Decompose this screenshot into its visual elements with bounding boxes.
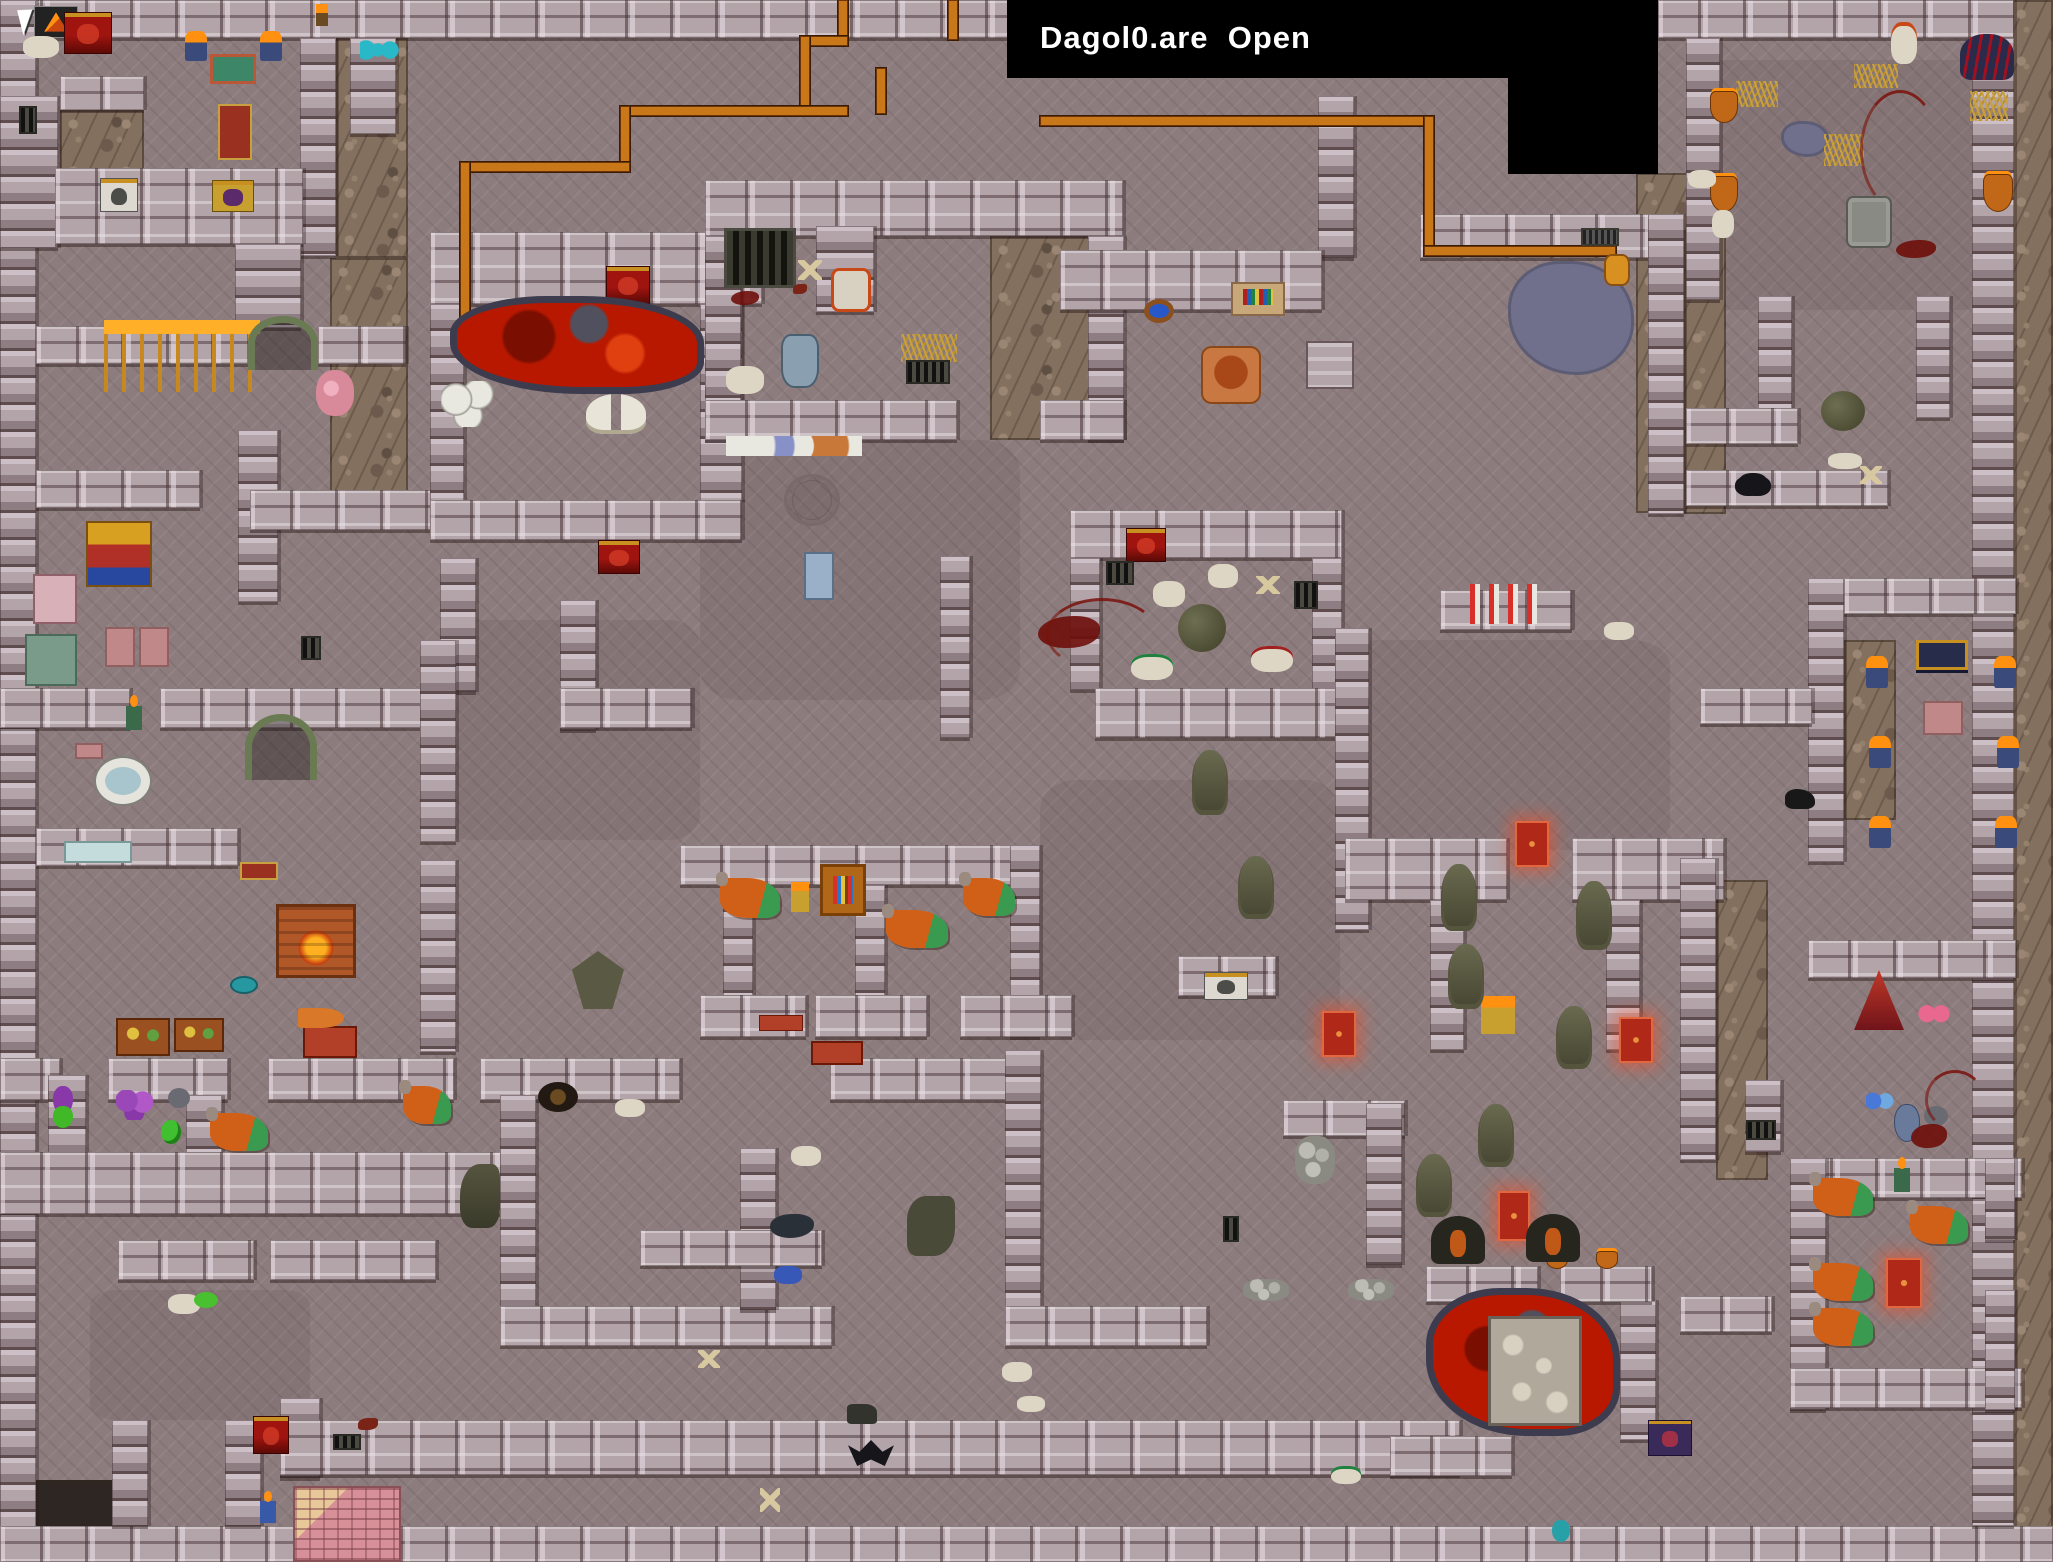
stone-wall [1560,1266,1652,1302]
skeleton-object [1017,1396,1045,1412]
skulls-plat-object [1488,1316,1582,1426]
skeleton-object [23,36,59,58]
stone-wall [0,688,130,728]
stone-wall [270,1240,436,1280]
bones-object [1256,576,1280,594]
grate-object [1294,581,1318,609]
skeleton-object [791,1146,821,1166]
heat-pipe [800,36,810,114]
skeleton-rack-object [831,268,871,312]
poles-candles-object [1470,584,1544,624]
straw-object [1736,81,1778,107]
stone-wall [0,0,1010,38]
shade-object [1040,780,1340,1040]
awning-object [403,1086,451,1124]
statue-object [1558,1006,1590,1064]
stone-wall [1005,1050,1041,1312]
bottles-blue-object [360,40,400,60]
straw-object [1824,134,1864,166]
heat-pipe [1040,116,1434,126]
stone-wall [36,470,200,508]
stone-wall [250,490,446,530]
table-brown-object [174,1018,224,1052]
teal-pot-object [1552,1520,1570,1542]
brazier-object [185,31,207,61]
stone-wall [940,556,970,738]
arch-green-object [245,714,317,780]
stone-wall [1005,1306,1207,1346]
skeleton-object [1002,1362,1032,1382]
table-set-object [1201,346,1261,404]
skull-pile-object [1295,1136,1335,1184]
statue-object [1194,750,1226,810]
brazier-hang-object [1596,1251,1618,1269]
blood-arc-object [1046,598,1158,670]
blood-arc-object [1860,90,1940,210]
stone-wall [1366,1103,1402,1265]
grate-object [1106,561,1134,585]
banner-purple-object [212,180,254,212]
stone-wall [1844,578,2016,614]
stone-wall [815,995,927,1037]
skeleton-object [1712,210,1734,238]
stone-wall [420,860,456,1052]
statue-object [1240,856,1272,914]
banner-red-object [1126,528,1166,562]
awning-object [886,910,948,948]
pots-white-object [441,381,501,427]
rock-outcrop [60,110,144,170]
stone-wall [60,76,144,110]
stone-wall [318,326,406,364]
table-red-object [303,1026,357,1058]
fish-banner-object [298,1008,344,1028]
awning-object [1813,1263,1873,1301]
skull-pile-object [1243,1279,1289,1301]
grate-object [301,636,321,660]
skeleton-object [1153,581,1185,607]
dragon-st-object [907,1196,955,1256]
rune-circle-object [784,474,840,526]
bookshelf-object [1231,282,1285,316]
sarcophagus-object [781,334,819,388]
skeleton-object [1208,564,1238,588]
stone-wall [1916,296,1950,418]
bones-object [1860,466,1882,484]
stone-wall [1648,214,1684,514]
statue-object [1418,1154,1450,1212]
table-red-object [811,1041,863,1065]
bed-object [804,552,834,600]
brazier-object [1866,656,1888,688]
statue-object [1450,944,1482,1004]
eagle-object [1526,1214,1580,1262]
statue-object [1578,881,1610,945]
rat-object [793,284,807,294]
stone-wall [560,688,692,728]
boulder-object [1821,391,1865,431]
banner-purpledark-object [1648,1420,1692,1456]
boulder-object [1178,604,1226,652]
stone-wall [1758,296,1792,418]
well-object [96,758,150,804]
stone-wall [480,1058,680,1100]
skeleton-object [1688,170,1716,188]
pool-slate-object [1781,121,1829,157]
gargoyle-object [460,1164,500,1228]
banner-red-object [64,12,112,54]
wardrobe-pink-object [33,574,77,624]
bones-object [798,260,822,280]
torch-object [316,4,328,26]
plate-teal-object [230,976,258,994]
skeleton-object [1604,622,1634,640]
heat-pipe [1424,246,1616,256]
slab-steps-object [1306,341,1354,389]
skeleton-object [615,1099,645,1117]
anvil-object [847,1404,877,1424]
orbs-blue-object [1866,1092,1894,1110]
heat-pipe [948,0,958,40]
statue-object [1480,1104,1512,1162]
stone-wall [500,1306,832,1346]
heat-pipe [460,162,630,172]
heat-pipe [620,106,630,170]
stone-wall [430,500,742,540]
banner-skull-object [1204,972,1248,1000]
grate-object [19,106,37,134]
grate-object [1223,1216,1239,1242]
portcullis-object [724,228,796,288]
stone-wall [1658,0,2014,38]
rug-red-object [240,862,278,880]
stone-wall [1390,1436,1512,1476]
rug-glow-object [1886,1258,1922,1308]
table-brown-object [116,1018,170,1056]
pink-plat-object [293,1486,401,1562]
brazier-object [1997,736,2019,768]
slime-object [194,1292,218,1308]
stone-wall [300,38,336,256]
wardrobe-object [820,864,866,916]
stone-wall [1680,1296,1772,1332]
spider-object [1738,473,1768,495]
rug-pink-object [75,743,103,759]
map-viewport[interactable]: Dagol0.are Open [0,0,2053,1562]
straw-object [901,334,957,362]
stone-wall [1620,1300,1656,1440]
stone-wall [1808,940,2016,978]
window-title: Dagol0.are Open [1040,20,1311,56]
straw-object [1970,91,2008,121]
gem-blue-object [774,1266,802,1284]
skeleton-object [726,366,764,394]
vent-object [1581,228,1619,246]
rug-glow-object [1498,1191,1530,1241]
stone-wall [1095,688,1347,738]
stone-wall [1345,838,1507,900]
stone-wall [1680,858,1716,1160]
arch-green-object [248,316,318,370]
bowls-purple-object [116,1090,154,1120]
flask-green-object [53,1106,73,1128]
stone-wall [420,640,456,842]
stone-wall [118,1240,254,1280]
tusks-object [586,394,646,434]
stone-wall [1745,1080,1781,1152]
stone-wall [960,995,1072,1037]
bench-blue-object [64,841,132,863]
statue-object [1443,864,1475,926]
brazier-hang-object [1983,174,2013,212]
jars-row-object [726,436,862,456]
awning-object [210,1113,268,1151]
skeleton-cruc-object [1891,26,1917,64]
awning-object [1813,1178,1873,1216]
title-bar-black-panel [1508,78,1658,174]
rug-pink-object [105,627,135,667]
rat-object [358,1418,378,1430]
bones-object [698,1350,720,1368]
stone-wall [1686,408,1798,444]
person-object [1894,1168,1910,1192]
stone-wall [1700,688,1812,724]
hearts-object [1918,1002,1950,1028]
stone-wall [1040,400,1124,440]
brazier-hang-object [1710,91,1738,123]
awning-object [1910,1206,1968,1244]
candelabra-object [1481,996,1515,1034]
rug-glow-object [1322,1011,1356,1057]
egg-green-object [161,1120,181,1144]
candelabra-object [791,882,809,912]
eagle-object [1431,1216,1485,1264]
canister-object [1604,254,1630,286]
oven-object [276,904,356,978]
rug-teal-object [210,54,256,84]
skeleton-red-object [1251,646,1293,672]
stone-wall [112,1420,148,1526]
chest-ornate-object [86,521,152,587]
awning-object [1813,1308,1873,1346]
grate-object [333,1434,361,1450]
stone-wall [1985,1290,2015,1410]
banner-red-object [598,540,640,574]
stone-wall [1808,578,1844,862]
chandelier-object [104,328,260,392]
stone-wall [0,1152,506,1214]
rug-pink-object [139,627,169,667]
stone-wall [1985,1158,2015,1240]
rug-glow-object [1619,1017,1653,1063]
banner-navy-object [1916,640,1968,670]
brazier-object [1994,656,2016,688]
shade-object [90,1290,310,1420]
campfire-object [538,1082,578,1112]
bench-red-object [759,1015,803,1031]
person-blue-object [260,1501,276,1523]
stone-wall [500,1095,536,1309]
skeleton-object [1828,453,1862,469]
brazier-object [1869,736,1891,768]
rug-glow-object [1515,821,1549,867]
stone-wall [55,168,303,244]
heat-pipe [1424,116,1434,254]
heat-pipe [620,106,848,116]
pinkmass-object [316,370,354,416]
stone-wall [1686,38,1720,300]
stone-wall [235,244,301,328]
pot-gray-object [168,1088,190,1108]
brazier-object [1869,816,1891,848]
brazier-object [260,31,282,61]
stone-wall [1070,510,1342,558]
stone-wall [705,400,957,440]
blood-arc-object [1925,1070,1985,1130]
basin-object [1144,299,1174,323]
banner-skull-object [100,178,138,212]
bones-object [760,1488,780,1512]
grate-object [1746,1120,1776,1140]
awning-object [720,878,780,918]
desk-green-object [25,634,77,686]
straw-object [1854,64,1898,88]
grate-object [906,360,950,384]
rug-red-object [218,104,252,160]
person-object [126,706,142,730]
skull-pile-object [1348,1279,1394,1301]
banner-red-object [253,1416,289,1454]
shade-object [700,440,1020,700]
stone-wall [1686,470,1888,506]
brazier-object [1995,816,2017,848]
shade-object [1340,640,1670,850]
skeleton-green-object [1331,1466,1361,1484]
coffin-bat-object [1960,34,2014,80]
heat-pipe [876,68,886,114]
rug-pink-object [1923,701,1963,735]
awning-object [963,878,1015,916]
